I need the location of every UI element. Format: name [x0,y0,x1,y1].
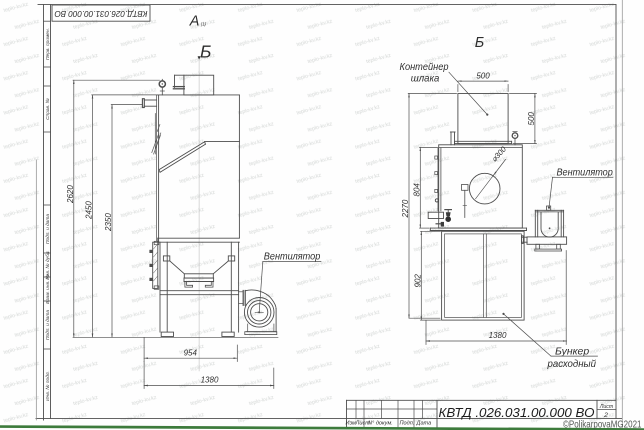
svg-text:1380: 1380 [201,376,219,385]
svg-text:2: 2 [603,412,608,419]
svg-text:2350: 2350 [104,213,113,232]
svg-text:Вентилятор: Вентилятор [557,167,614,178]
svg-text:©PolikarpovaMG2021: ©PolikarpovaMG2021 [563,420,642,430]
svg-text:902: 902 [414,274,423,288]
svg-text:Б: Б [200,41,211,61]
svg-text:1380: 1380 [489,331,507,340]
svg-text:Изм: Изм [346,421,357,427]
svg-text:КВТД .026.031.00.000 ВО: КВТД .026.031.00.000 ВО [439,405,595,420]
svg-text:Подп.: Подп. [400,421,415,427]
svg-text:Справ. №: Справ. № [45,98,51,120]
svg-text:Подп. и дата: Подп. и дата [45,310,51,340]
svg-text:Лист: Лист [599,404,614,410]
svg-text:Контейнер: Контейнер [400,62,450,73]
svg-text:шлака: шлака [411,74,440,85]
svg-text:2450: 2450 [85,201,94,220]
svg-text:804: 804 [413,183,422,197]
svg-text:2270: 2270 [401,199,410,218]
svg-text:Вентилятор: Вентилятор [264,252,321,263]
svg-text:2620: 2620 [66,185,75,204]
svg-text:А: А [189,13,200,29]
svg-text:(1): (1) [201,22,207,27]
svg-text:Инв. № подл.: Инв. № подл. [45,371,51,401]
svg-text:500: 500 [527,112,536,126]
svg-text:954: 954 [184,348,198,357]
svg-text:расходный: расходный [547,359,597,370]
svg-text:Дата: Дата [416,421,432,427]
svg-text:Б: Б [475,35,484,51]
svg-text:N° докум.: N° докум. [368,421,393,427]
svg-text:Подп. и дата: Подп. и дата [45,214,51,244]
svg-text:500: 500 [476,72,490,81]
svg-text:Взам. инв. №: Взам. инв. № [45,274,51,304]
svg-text:КВТД.026.031.00.000 ВО: КВТД.026.031.00.000 ВО [54,9,147,19]
svg-text:Перв. примен.: Перв. примен. [45,28,51,60]
